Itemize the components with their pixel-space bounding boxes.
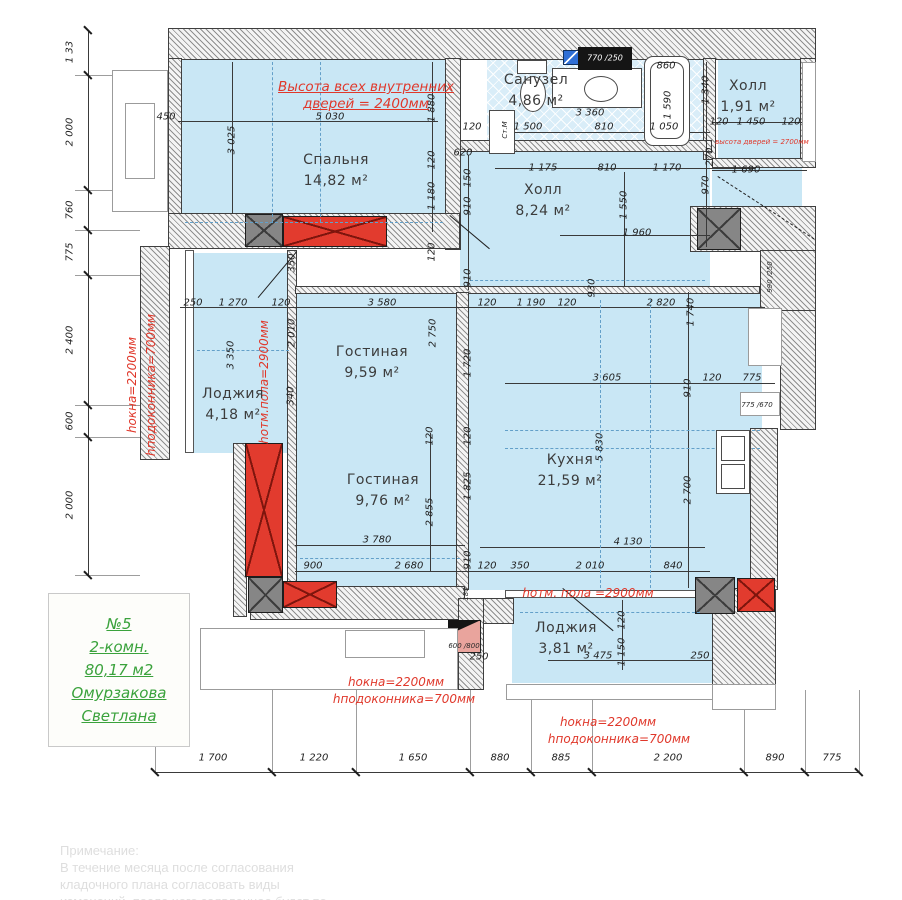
wall (780, 310, 816, 430)
dim-label: 120 (617, 610, 628, 629)
dim-label: 910 (463, 196, 474, 215)
red-annotation: hотм.пола=2900мм (257, 320, 271, 444)
dim-label: 1 190 (517, 298, 546, 309)
dim-label: 2 680 (395, 561, 424, 572)
dim-label: 810 (597, 163, 616, 174)
dim-label: 270 (705, 147, 716, 166)
dimension-line (480, 547, 705, 548)
bottom-dim-label: 880 (490, 753, 509, 764)
dim-label: 1 170 (653, 163, 682, 174)
dim-label: 2 855 (425, 498, 436, 527)
dim-label: 120 (477, 298, 496, 309)
fixture (584, 76, 618, 102)
left-dim-label: 1 33 (65, 41, 76, 63)
dashed-guide-line (272, 62, 274, 222)
dim-label: 3 605 (593, 373, 622, 384)
bottom-dim-label: 885 (551, 753, 570, 764)
dim-label: 350 (510, 561, 529, 572)
dim-label: 120 (427, 242, 438, 261)
dim-label: 250 (690, 651, 709, 662)
dashed-guide-line (197, 350, 289, 352)
dim-label: Ст.М (501, 121, 509, 138)
red-annotation: Высота всех внутренних (278, 79, 454, 95)
red-annotation: hокна=2200мм (348, 675, 444, 689)
dim-label: 1 180 (427, 182, 438, 211)
dim-label: 600 /800 (448, 642, 479, 650)
room-name-label: Гостиная (336, 344, 408, 360)
dim-label: 120 (271, 298, 290, 309)
left-dim-label: 600 (65, 411, 76, 430)
dim-label: 120 (463, 426, 474, 445)
footnote-line: изменений, после чего заявленное будет п… (60, 893, 327, 900)
room-area-label: 14,82 м² (304, 173, 369, 189)
dim-label: 150 (463, 168, 474, 187)
room-name-label: Холл (524, 182, 562, 198)
dim-label: 775 (742, 373, 761, 384)
dimension-line (75, 437, 140, 438)
dim-label: 120 (427, 150, 438, 169)
room-area-label: 8,24 м² (515, 203, 570, 219)
dimension-line (272, 690, 273, 772)
dim-label: 620 (453, 148, 472, 159)
fixture (712, 684, 776, 710)
left-dim-label: 2 000 (65, 118, 76, 147)
room-name-label: Спальня (303, 152, 369, 168)
fixture (506, 684, 716, 700)
room-area-label: 9,59 м² (344, 365, 399, 381)
dim-label: 910 (463, 268, 474, 287)
bottom-dim-label: 890 (765, 753, 784, 764)
dimension-line (548, 660, 713, 661)
room-area-label: 4,86 м² (508, 93, 563, 109)
bottom-dim-label: 1 700 (199, 753, 228, 764)
dim-label: 1 590 (663, 91, 674, 120)
room-area-label: 21,59 м² (538, 473, 603, 489)
dim-label: 775 /670 (741, 401, 772, 409)
shaft-block (695, 577, 735, 614)
dim-label: 120 (709, 117, 728, 128)
dim-label: 2 010 (576, 561, 605, 572)
room-area-label: 9,76 м² (355, 493, 410, 509)
dim-label: 3 580 (368, 298, 397, 309)
dim-label: 1 050 (650, 122, 679, 133)
room-fill (192, 253, 292, 453)
apartment-info-box: №5 2-комн. 80,17 м2 Омурзакова Светлана (48, 593, 190, 747)
left-dim-label: 775 (65, 242, 76, 261)
bottom-dim-label: 1 220 (300, 753, 329, 764)
dim-label: 3 360 (576, 108, 605, 119)
red-annotation: hподоконника=700мм (144, 314, 158, 456)
dim-label: 120 (477, 561, 496, 572)
footnote-line: кладочного плана согласовать виды (60, 876, 327, 893)
dim-label: 120 (462, 122, 481, 133)
dim-label: 340 (286, 386, 297, 405)
dim-label: 910 (683, 378, 694, 397)
dim-label: 120 (781, 117, 800, 128)
red-annotation: hотм. пола =2900мм (522, 586, 653, 600)
dim-label: 1 825 (463, 472, 474, 501)
bottom-dim-label: 1 650 (399, 753, 428, 764)
bottom-dim-label: 775 (822, 753, 841, 764)
dimension-line (178, 121, 438, 122)
dimension-line (592, 690, 593, 772)
fixture (345, 630, 425, 658)
dim-label: 1 720 (463, 349, 474, 378)
dim-label: 1 450 (737, 117, 766, 128)
dim-label: 1 150 (617, 638, 628, 667)
dimension-line (75, 275, 140, 276)
fixture (721, 436, 745, 461)
dim-label: 860 (656, 61, 675, 72)
dimension-line (180, 307, 765, 308)
dim-label: 3 780 (363, 535, 392, 546)
apartment-type: 2-комн. (89, 638, 148, 656)
dim-label: 250 (183, 298, 202, 309)
dim-label: 1 270 (219, 298, 248, 309)
room-name-label: Кухня (547, 452, 594, 468)
dimension-line (805, 690, 806, 772)
fixture (563, 50, 579, 65)
dim-label: 2 010 (287, 319, 298, 348)
room-area-label: 3,81 м² (538, 641, 593, 657)
shaft-block (245, 214, 283, 247)
dim-label: 1 960 (623, 228, 652, 239)
dashed-guide-line (520, 612, 700, 614)
dim-label: 5 830 (595, 433, 606, 462)
red-annotation: hподоконника=700мм (333, 692, 475, 706)
shaft-block (697, 208, 741, 250)
dimension-line (505, 383, 775, 384)
room-area-label: 4,18 м² (205, 407, 260, 423)
dim-label: 180 (462, 587, 470, 600)
dim-label: 910 (463, 550, 474, 569)
footnote-line: В течение месяца после согласования (60, 859, 327, 876)
room-name-label: Лоджия (202, 386, 264, 402)
wall (712, 158, 816, 168)
faint-footnote: Примечание: В течение месяца после согла… (60, 842, 327, 900)
dim-label: 5 030 (316, 112, 345, 123)
dimension-line (88, 30, 89, 575)
dim-label: 810 (594, 122, 613, 133)
footnote-line: Примечание: (60, 842, 327, 859)
vent-block (245, 443, 283, 577)
dim-label: 970 (701, 175, 712, 194)
vent-block (283, 581, 337, 608)
fixture (802, 62, 816, 162)
dim-label: 1 690 (732, 165, 761, 176)
dimension-line (859, 690, 860, 772)
wall (750, 428, 778, 590)
fixture (748, 308, 782, 366)
dim-label: 2 820 (647, 298, 676, 309)
dim-label: 770 /250 (587, 54, 623, 63)
dashed-guide-line (185, 222, 443, 224)
dim-label: 450 (156, 112, 175, 123)
red-annotation: hокна=2200мм (125, 337, 139, 433)
dim-label: 1 500 (514, 122, 543, 133)
dimension-line (75, 230, 140, 231)
left-dim-label: 760 (65, 200, 76, 219)
bottom-dim-label: 2 200 (654, 753, 683, 764)
wall (168, 28, 816, 60)
dimension-line (75, 575, 140, 576)
dashed-guide-line (650, 300, 652, 588)
dimension-line (531, 690, 532, 772)
dim-label: 4 130 (614, 537, 643, 548)
fixture (125, 103, 155, 179)
dim-label: 350 (287, 253, 298, 272)
dimension-line (688, 292, 689, 588)
dim-label: 120 (702, 373, 721, 384)
apartment-floor-plan: 4505 0303 0256201 8801201 18015091091012… (0, 0, 902, 900)
dim-label: 1 550 (619, 191, 630, 220)
room-name-label: Санузел (504, 72, 568, 88)
room-name-label: Гостиная (347, 472, 419, 488)
red-annotation: hподоконника=700мм (548, 732, 690, 746)
dimension-line (295, 571, 710, 572)
dim-label: 3 025 (227, 126, 238, 155)
dashed-guide-line (300, 558, 460, 560)
room-name-label: Лоджия (535, 620, 597, 636)
dim-label: 840 (663, 561, 682, 572)
dim-label: 1 740 (686, 298, 697, 327)
shaft-block (248, 577, 283, 613)
left-dim-label: 2 000 (65, 491, 76, 520)
vent-block (283, 216, 387, 247)
dim-label: 1 340 (701, 76, 712, 105)
dim-label: 120 (425, 426, 436, 445)
dim-label: 990 /250 (766, 261, 774, 292)
dim-label: 930 (587, 278, 598, 297)
dim-label: 3 350 (226, 341, 237, 370)
apartment-total-area: 80,17 м2 (85, 661, 154, 679)
dimension-line (155, 772, 860, 773)
red-annotation: высота дверей = 2700мм (715, 138, 809, 146)
dim-label: 250 (469, 652, 488, 663)
vent-block (737, 578, 775, 612)
wall (295, 286, 760, 294)
left-dim-label: 2 400 (65, 326, 76, 355)
dim-label: 2 700 (683, 476, 694, 505)
dim-label: 2 750 (428, 319, 439, 348)
room-fill (512, 595, 712, 683)
owner-surname: Омурзакова (72, 684, 167, 702)
dim-label: 120 (557, 298, 576, 309)
wall (185, 250, 194, 453)
room-area-label: 1,91 м² (720, 99, 775, 115)
red-annotation: дверей = 2400мм (303, 96, 429, 112)
fixture (721, 464, 745, 489)
dim-label: 900 (303, 561, 322, 572)
owner-name: Светлана (81, 707, 156, 725)
floor-plan-canvas: 4505 0303 0256201 8801201 18015091091012… (0, 0, 902, 900)
room-name-label: Холл (729, 78, 767, 94)
apartment-number: №5 (106, 615, 131, 633)
red-annotation: hокна=2200мм (560, 715, 656, 729)
dim-label: 1 175 (529, 163, 558, 174)
